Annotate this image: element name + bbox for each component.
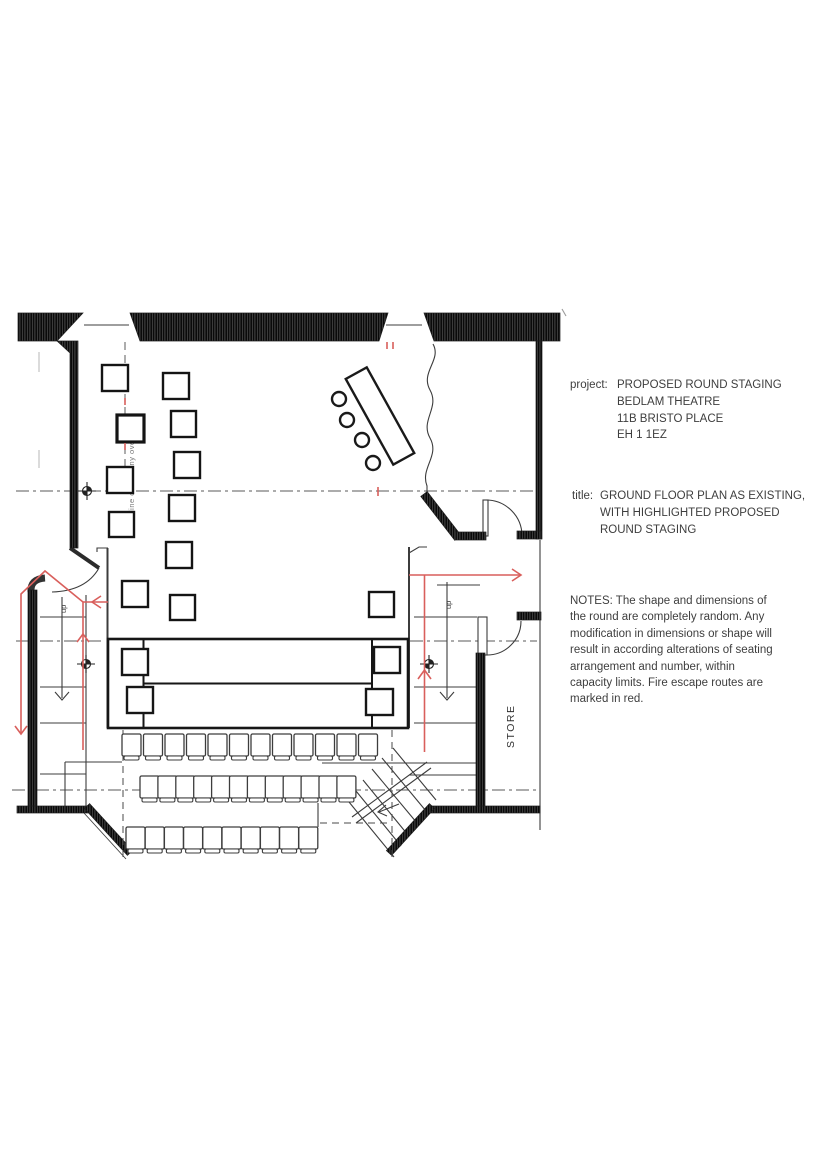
hall-squares [102, 365, 394, 620]
top-wall-middle [130, 313, 388, 341]
seating-area [122, 730, 392, 860]
title-block: title: GROUND FLOOR PLAN AS EXISTING, WI… [572, 488, 805, 538]
stool [355, 433, 369, 447]
stage-corner-square [374, 647, 400, 673]
title-line: WITH HIGHLIGHTED PROPOSED [600, 505, 805, 522]
tech-desk [346, 367, 415, 464]
vestibule-door-swing [486, 500, 522, 536]
notes-line: modification in dimensions or shape will [570, 626, 820, 642]
survey-marker-icon [420, 655, 438, 673]
store-wall-top [517, 612, 541, 620]
notes-line: arrangement and number, within [570, 659, 820, 675]
stage-block [108, 639, 408, 728]
stair-enclosure-wall [28, 590, 37, 807]
notes-block: NOTES: The shape and dimensions of the r… [570, 593, 820, 708]
stool [340, 413, 354, 427]
survey-marker-icon [78, 482, 96, 500]
notes-line: the round are completely random. Any [570, 609, 820, 625]
notes-line: NOTES: The shape and dimensions of [570, 593, 820, 609]
left-wall [57, 341, 78, 548]
title-label: title: [572, 488, 600, 505]
seating-row-2 [140, 776, 356, 802]
notes-line: marked in red. [570, 691, 820, 707]
stair-tread [393, 748, 436, 800]
hall-square [117, 415, 144, 442]
project-line: BEDLAM THEATRE [617, 394, 782, 411]
left-door-swing [52, 568, 99, 592]
stair-tread [372, 769, 417, 823]
hall-square [107, 467, 133, 493]
left-door-leaf [70, 548, 99, 568]
project-line: EH 1 1EZ [617, 427, 782, 444]
seating-row-3 [126, 827, 318, 853]
project-line: 11B BRISTO PLACE [617, 411, 782, 428]
right-wall [536, 341, 542, 539]
entrance-wall [517, 531, 541, 539]
up-label-right: up [444, 601, 453, 609]
entrance-diagonal-wall [421, 492, 461, 541]
project-block: project: PROPOSED ROUND STAGING BEDLAM T… [570, 377, 782, 444]
stair-tread [382, 758, 426, 811]
hall-square [369, 592, 394, 617]
floor-plan-sheet: line of balcony over [0, 0, 826, 1169]
top-wall-right [424, 313, 560, 341]
vestibule-door-leaf [483, 500, 488, 536]
stage-corner-square [122, 649, 148, 675]
stray-mark [562, 309, 566, 316]
hall-square [170, 595, 195, 620]
notes-line: result in according alterations of seati… [570, 642, 820, 658]
squiggle-opening [425, 344, 435, 494]
floor-plan-drawing: line of balcony over [0, 0, 826, 1169]
hall-square [166, 542, 192, 568]
hall-square [171, 411, 196, 437]
hall-square [169, 495, 195, 521]
title-line: GROUND FLOOR PLAN AS EXISTING, [600, 488, 805, 505]
store-door-leaf [478, 617, 487, 655]
store-door-swing [487, 621, 521, 655]
entrance-wall [456, 532, 486, 540]
tech-desk-group [332, 367, 414, 470]
right-jamb [409, 547, 427, 553]
survey-marker-icon [77, 655, 95, 673]
bottom-wall-left [17, 806, 88, 813]
project-label: project: [570, 377, 617, 394]
hall-square [109, 512, 134, 537]
hall-square [174, 452, 200, 478]
stool [366, 456, 380, 470]
stage-corner-square [127, 687, 153, 713]
left-jamb [97, 548, 108, 552]
up-label-left: up [59, 605, 68, 613]
stool [332, 392, 346, 406]
stage-corner-square [366, 689, 393, 715]
walls [17, 313, 560, 855]
bottom-wall-right [428, 806, 540, 813]
project-line: PROPOSED ROUND STAGING [617, 377, 782, 394]
store-wall-left [476, 653, 485, 807]
seating-row-1 [122, 734, 378, 760]
store-label: STORE [505, 705, 517, 748]
hall-square [102, 365, 128, 391]
notes-line: capacity limits. Fire escape routes are [570, 675, 820, 691]
bottom-diagonal-wall-right [386, 804, 434, 856]
hall-square [163, 373, 189, 399]
title-line: ROUND STAGING [600, 522, 805, 539]
hall-square [122, 581, 148, 607]
top-wall-left [18, 313, 83, 341]
